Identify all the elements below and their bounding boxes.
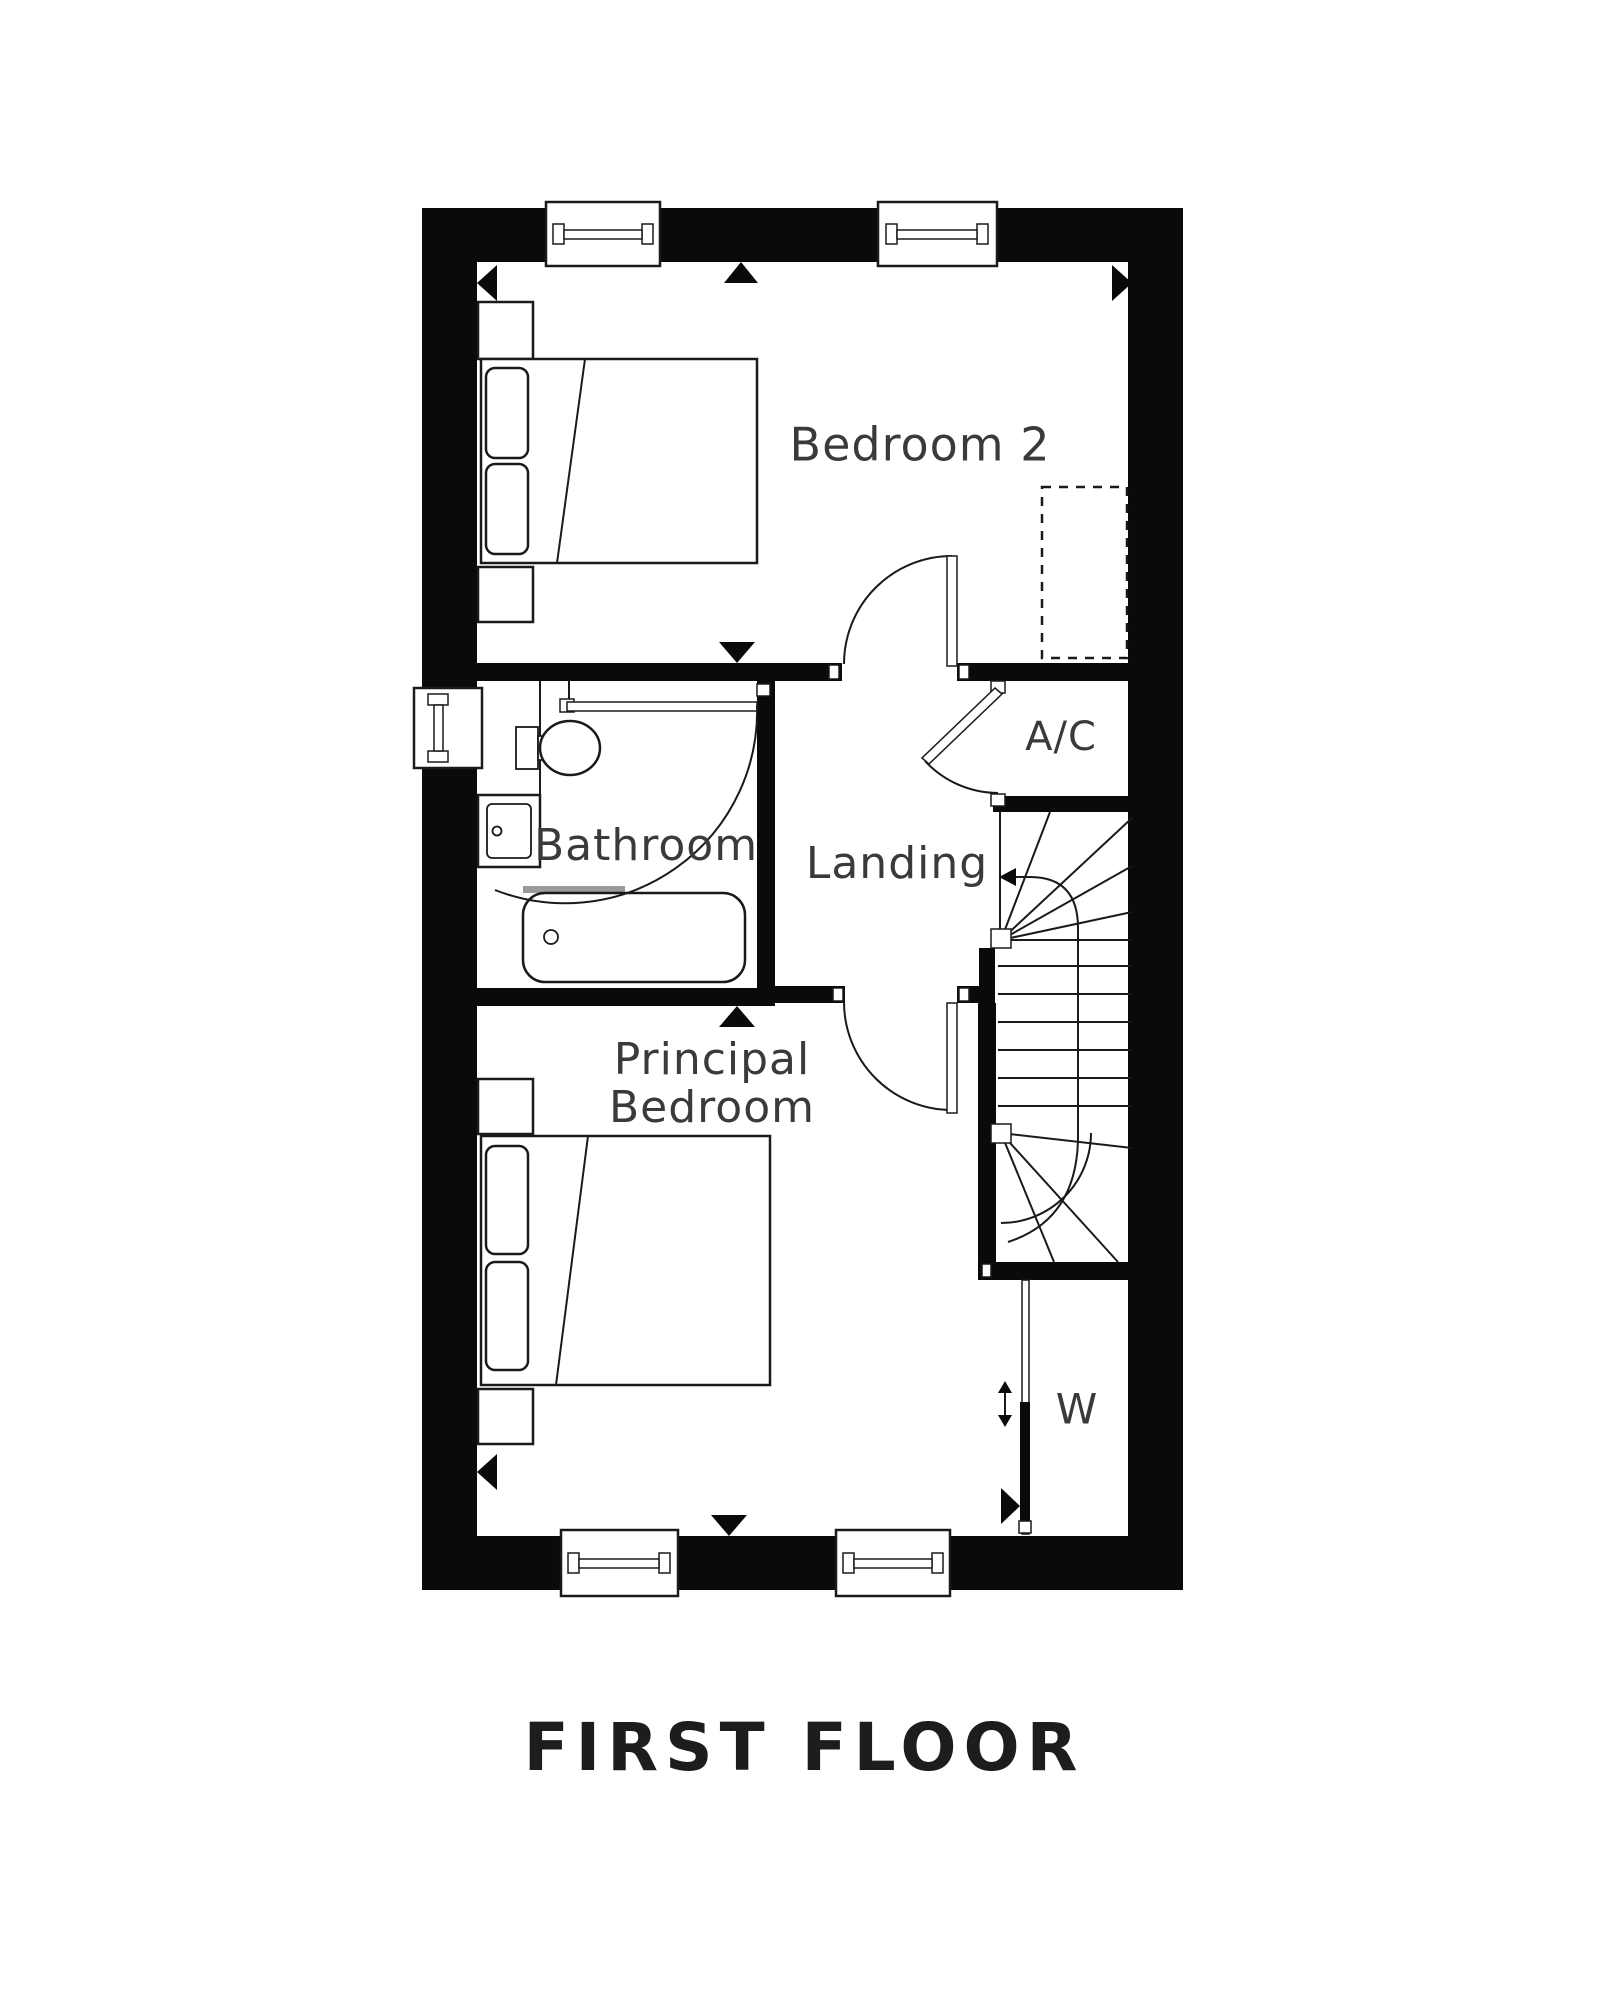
toilet-icon bbox=[516, 721, 600, 775]
room-label-landing: Landing bbox=[806, 838, 988, 889]
room-label-ac: A/C bbox=[1025, 714, 1097, 760]
floor-plan: Bedroom 2 Bathroom Landing A/C Principal… bbox=[0, 0, 1600, 2000]
basin-icon bbox=[478, 795, 540, 867]
floorplan-page: Bedroom 2 Bathroom Landing A/C Principal… bbox=[0, 0, 1600, 2000]
door-ac-cupboard bbox=[922, 681, 1005, 806]
room-label-bedroom2: Bedroom 2 bbox=[790, 418, 1051, 472]
window-icon-left bbox=[414, 688, 482, 768]
window-icon-bottom-left bbox=[561, 1530, 678, 1596]
bath-icon bbox=[523, 886, 745, 982]
room-label-principal-line2: Bedroom bbox=[609, 1082, 815, 1133]
window-icon-top-right bbox=[878, 202, 997, 266]
bed-symbol-bedroom2 bbox=[478, 302, 757, 622]
window-icon-bottom-right bbox=[836, 1530, 950, 1596]
bed-symbol-principal bbox=[478, 1079, 770, 1444]
room-label-bathroom: Bathroom bbox=[534, 820, 758, 871]
room-label-wardrobe: W bbox=[1056, 1385, 1099, 1434]
staircase bbox=[979, 812, 1132, 1262]
dashed-furniture-zone bbox=[1042, 487, 1127, 658]
door-principal-bedroom bbox=[844, 1002, 957, 1113]
door-bedroom2 bbox=[844, 556, 957, 666]
slide-arrow-icon bbox=[998, 1381, 1012, 1427]
window-icon-top-left bbox=[546, 202, 660, 266]
stair-direction-arrow bbox=[999, 868, 1078, 1242]
handrail bbox=[979, 948, 995, 1124]
room-label-principal-line1: Principal bbox=[614, 1034, 811, 1085]
page-title: FIRST FLOOR bbox=[524, 1709, 1085, 1786]
